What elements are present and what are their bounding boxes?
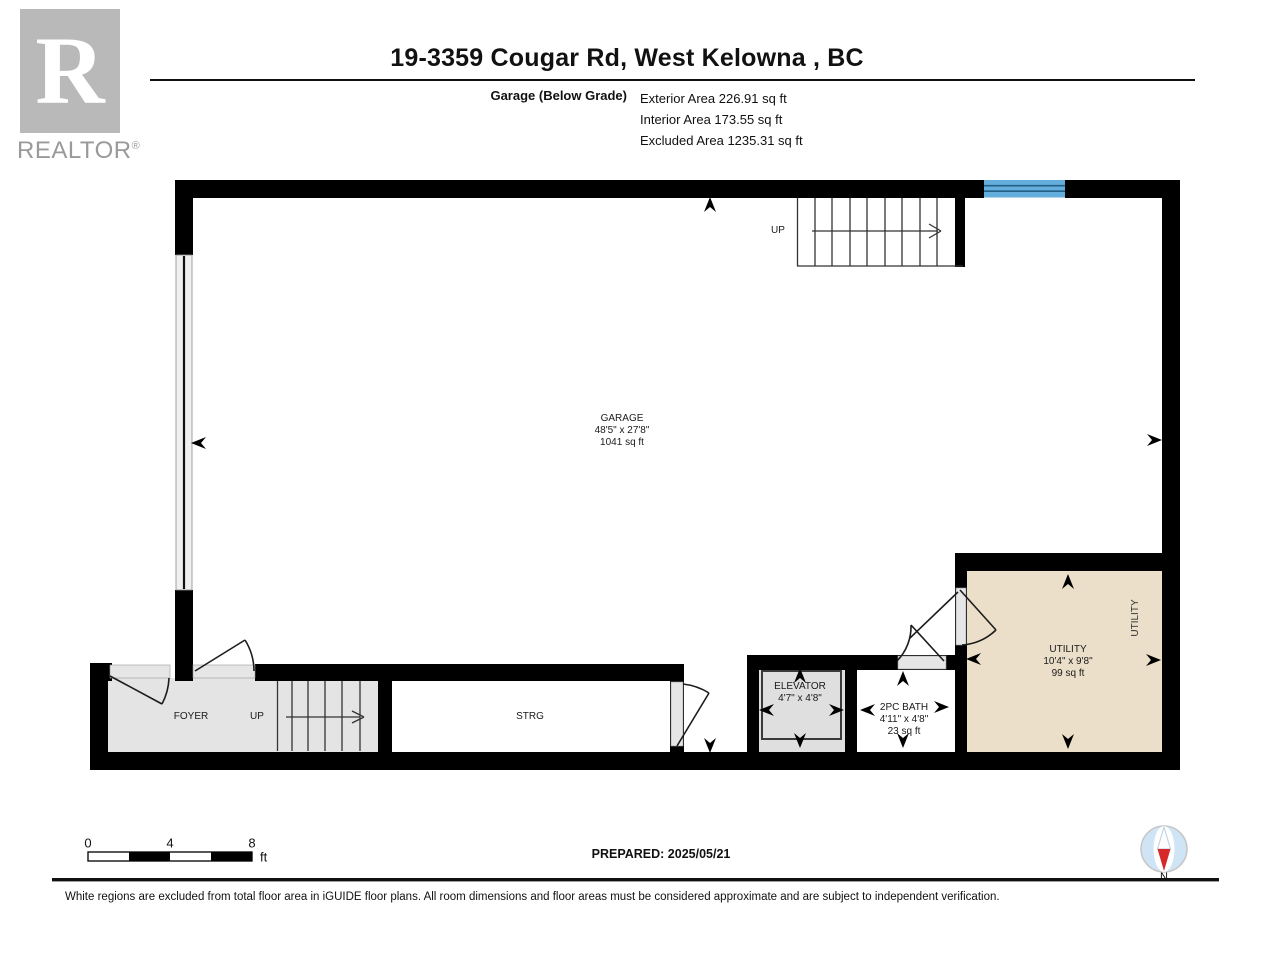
staircase-top	[797, 198, 963, 266]
footer-divider	[52, 878, 1219, 881]
bath-area: 23 sq ft	[888, 726, 921, 738]
garage-area: 1041 sq ft	[600, 437, 644, 449]
utility-side-label: UTILITY	[1130, 599, 1142, 636]
scale-tick-0: 0	[84, 836, 91, 851]
utility-dims: 10'4" x 9'8"	[1043, 656, 1092, 668]
up-label-bottom: UP	[250, 711, 264, 723]
compass-icon	[1141, 826, 1187, 872]
bath-label: 2PC BATH	[880, 702, 928, 714]
scale-tick-8: 8	[248, 836, 255, 851]
garage-door	[176, 255, 192, 590]
utility-label: UTILITY	[1049, 644, 1086, 656]
scale-tick-4: 4	[166, 836, 173, 851]
compass-n-label: N	[1160, 871, 1168, 883]
floor-plan-canvas	[0, 0, 1280, 960]
scale-bar	[88, 852, 252, 861]
disclaimer-text: White regions are excluded from total fl…	[65, 891, 1000, 903]
room-fills	[108, 571, 1162, 754]
utility-area: 99 sq ft	[1052, 668, 1085, 680]
strg-label: STRG	[516, 711, 544, 723]
bath-dims: 4'11" x 4'8"	[880, 714, 929, 726]
prepared-date: PREPARED: 2025/05/21	[540, 847, 782, 861]
elevator-label: ELEVATOR	[774, 681, 826, 693]
elevator-dims: 4'7" x 4'8"	[778, 693, 822, 705]
up-label-top: UP	[771, 225, 785, 237]
garage-dims: 48'5" x 27'8"	[595, 425, 650, 437]
scale-unit: ft	[260, 850, 267, 865]
window	[984, 180, 1065, 198]
garage-label: GARAGE	[601, 413, 644, 425]
foyer-label: FOYER	[174, 711, 208, 723]
